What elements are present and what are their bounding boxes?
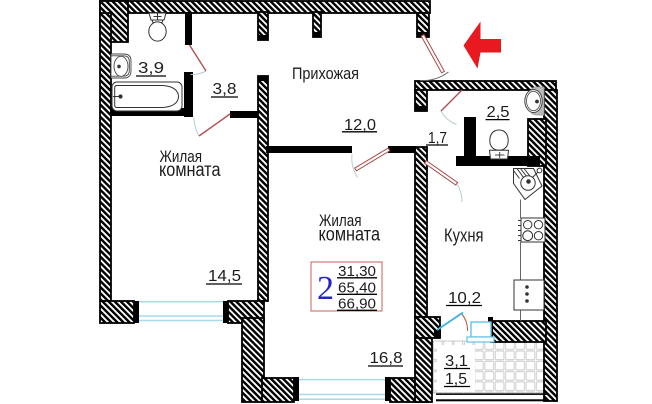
svg-text:комната: комната (159, 160, 221, 181)
svg-text:комната: комната (319, 225, 381, 246)
svg-text:Кухня: Кухня (444, 226, 484, 246)
svg-text:3,9: 3,9 (138, 60, 164, 77)
svg-text:14,5: 14,5 (208, 268, 241, 285)
svg-text:Прихожая: Прихожая (292, 64, 359, 83)
svg-text:16,8: 16,8 (370, 350, 403, 367)
svg-text:3,1: 3,1 (445, 353, 468, 370)
svg-text:3,8: 3,8 (213, 81, 237, 98)
svg-text:2: 2 (317, 270, 334, 307)
svg-text:10,2: 10,2 (448, 290, 481, 307)
svg-text:1,5: 1,5 (445, 371, 467, 388)
svg-text:2,5: 2,5 (487, 104, 510, 121)
